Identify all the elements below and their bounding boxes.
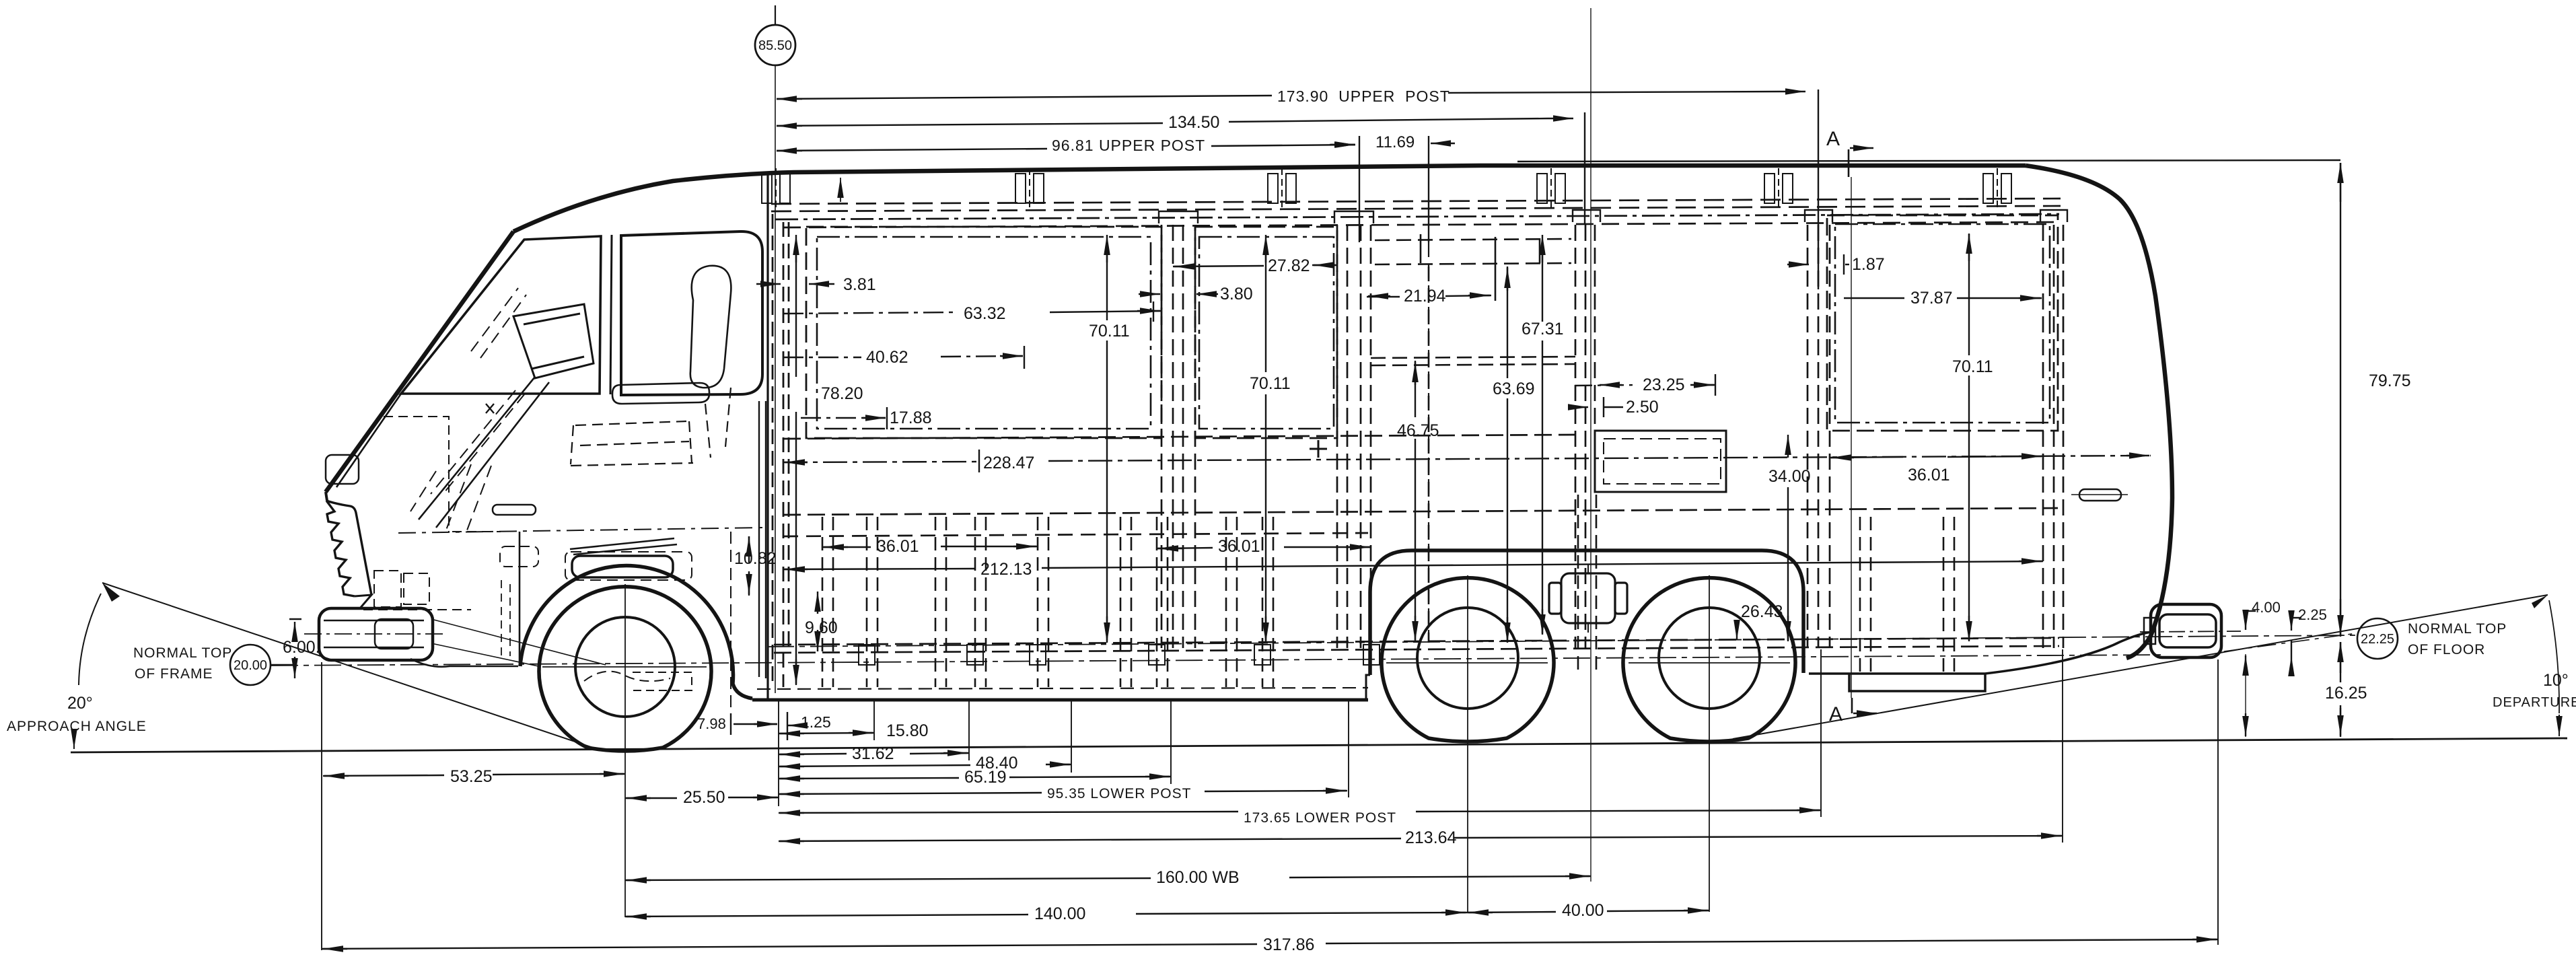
svg-text:70.11: 70.11 (1250, 374, 1291, 393)
svg-text:78.20: 78.20 (821, 384, 863, 403)
svg-text:10.82: 10.82 (734, 549, 777, 568)
svg-text:6.00.: 6.00. (283, 638, 320, 657)
svg-text:20.00: 20.00 (234, 658, 267, 673)
svg-text:63.69: 63.69 (1493, 380, 1535, 398)
svg-text:173.90 UPPER POST: 173.90 UPPER POST (1277, 87, 1450, 105)
svg-text:36.01: 36.01 (877, 537, 919, 556)
svg-text:31.62: 31.62 (852, 744, 894, 763)
svg-text:26.43: 26.43 (1741, 602, 1783, 621)
svg-text:2.50: 2.50 (1626, 398, 1659, 417)
svg-text:37.87: 37.87 (1910, 289, 1953, 308)
svg-text:9.60: 9.60 (805, 618, 838, 637)
svg-text:3.80: 3.80 (1220, 285, 1253, 303)
svg-text:212.13: 212.13 (980, 560, 1032, 579)
svg-text:96.81 UPPER POST: 96.81 UPPER POST (1052, 137, 1205, 154)
svg-text:25.50: 25.50 (683, 788, 725, 807)
svg-text:140.00: 140.00 (1034, 904, 1085, 923)
svg-text:15.80: 15.80 (886, 721, 929, 740)
svg-text:34.00: 34.00 (1768, 467, 1811, 486)
svg-text:16.25: 16.25 (2325, 684, 2367, 703)
svg-text:1.25: 1.25 (801, 713, 831, 731)
svg-text:22.25: 22.25 (2361, 632, 2394, 647)
svg-text:3.81: 3.81 (843, 275, 876, 294)
svg-text:40.62: 40.62 (866, 348, 908, 367)
svg-text:NORMAL TOP: NORMAL TOP (133, 645, 232, 661)
svg-text:4.00: 4.00 (2252, 599, 2281, 616)
svg-text:OF FRAME: OF FRAME (135, 666, 213, 682)
svg-text:20°: 20° (67, 694, 93, 713)
svg-text:OF FLOOR: OF FLOOR (2408, 642, 2485, 657)
svg-text:228.47: 228.47 (983, 454, 1034, 472)
svg-text:36.01: 36.01 (1218, 537, 1260, 556)
svg-text:1.87: 1.87 (1852, 255, 1885, 274)
svg-text:70.11: 70.11 (1952, 357, 1993, 376)
svg-text:134.50: 134.50 (1168, 113, 1219, 132)
svg-text:173.65 LOWER POST: 173.65 LOWER POST (1244, 810, 1396, 826)
svg-text:2.25: 2.25 (2298, 606, 2327, 623)
svg-text:36.01: 36.01 (1908, 466, 1950, 485)
svg-text:79.75: 79.75 (2369, 371, 2411, 390)
svg-text:APPROACH ANGLE: APPROACH ANGLE (7, 719, 147, 734)
svg-text:17.88: 17.88 (890, 408, 932, 427)
svg-text:160.00 WB: 160.00 WB (1156, 868, 1240, 887)
svg-text:67.31: 67.31 (1522, 320, 1564, 338)
svg-text:11.69: 11.69 (1375, 133, 1415, 151)
svg-text:23.25: 23.25 (1643, 376, 1685, 394)
svg-text:63.32: 63.32 (964, 304, 1006, 323)
svg-text:21.94: 21.94 (1404, 287, 1446, 306)
svg-text:7.98: 7.98 (697, 715, 726, 732)
svg-text:213.64: 213.64 (1405, 828, 1457, 847)
svg-text:27.82: 27.82 (1268, 256, 1310, 275)
svg-text:A: A (1826, 128, 1840, 150)
svg-text:85.50: 85.50 (758, 38, 792, 53)
svg-text:53.25: 53.25 (450, 767, 493, 786)
svg-text:10°: 10° (2543, 671, 2569, 690)
svg-text:95.35 LOWER POST: 95.35 LOWER POST (1047, 786, 1191, 801)
svg-text:70.11: 70.11 (1089, 322, 1130, 341)
svg-text:46.75: 46.75 (1397, 421, 1439, 440)
svg-text:65.19: 65.19 (964, 768, 1007, 787)
svg-text:NORMAL TOP: NORMAL TOP (2408, 621, 2507, 637)
svg-text:DEPARTURE: DEPARTURE (2493, 695, 2576, 710)
svg-text:40.00: 40.00 (1562, 901, 1604, 920)
svg-text:A: A (1829, 703, 1842, 725)
svg-text:317.86: 317.86 (1263, 935, 1314, 954)
